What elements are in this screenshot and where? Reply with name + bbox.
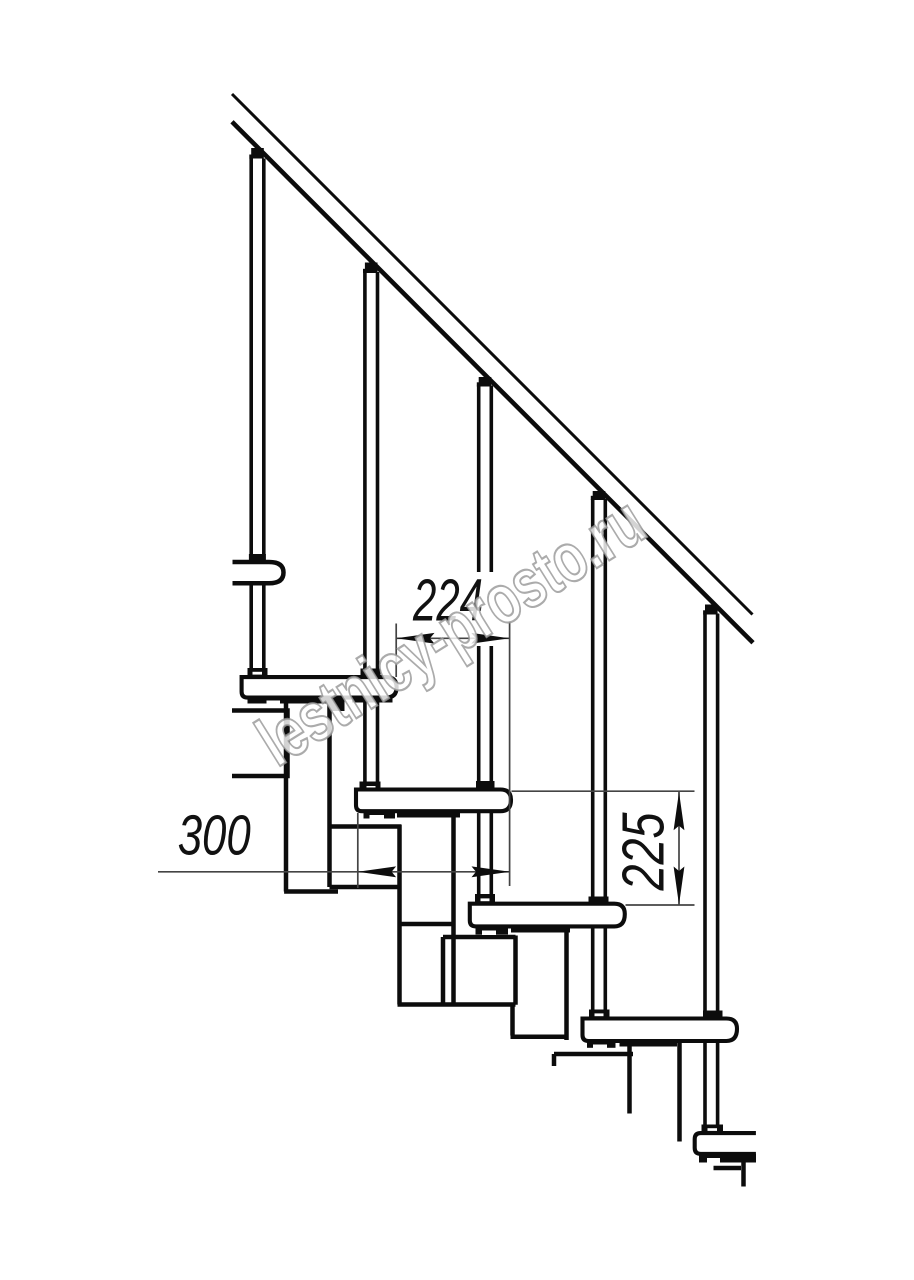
svg-text:225: 225 xyxy=(611,812,677,891)
svg-text:300: 300 xyxy=(178,804,251,868)
